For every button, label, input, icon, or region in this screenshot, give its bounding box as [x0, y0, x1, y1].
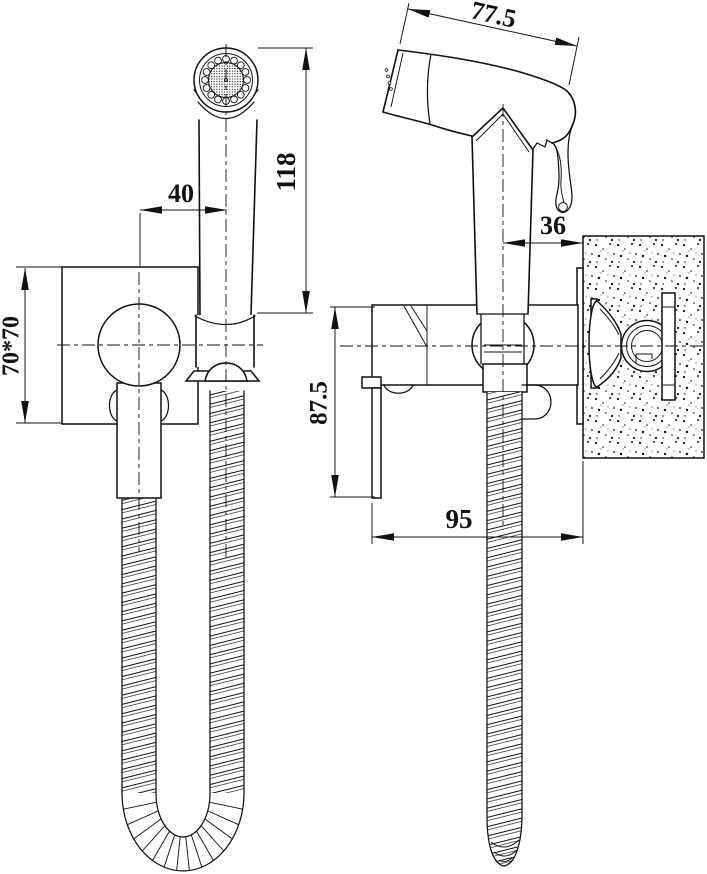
dim-95: 95 — [372, 461, 583, 544]
dim-70x70-label: 70*70 — [0, 316, 25, 376]
sprayer-head-face — [194, 48, 258, 119]
front-view — [62, 48, 259, 871]
sprayer-handle-front — [199, 120, 257, 315]
head-face-edge — [383, 50, 398, 112]
dim-87-5-label: 87.5 — [306, 381, 333, 425]
dim-77-5: 77.5 — [400, 0, 579, 85]
shower-hose-side — [487, 385, 551, 866]
dim-70x70: 70*70 — [0, 267, 62, 423]
control-lever-side — [362, 377, 413, 498]
lever-pivot-hump — [384, 385, 413, 393]
wall-section — [577, 236, 704, 458]
dim-118-label: 118 — [271, 152, 301, 191]
spray-nozzle-tip — [533, 91, 575, 212]
dim-40-label: 40 — [168, 179, 194, 208]
mounting-bracket — [662, 293, 675, 400]
dim-36-label: 36 — [540, 211, 566, 240]
bidet-sprayer-technical-drawing: 77.5 40 118 70*70 — [0, 0, 707, 874]
head-cap-seam — [428, 54, 432, 124]
hose-nut-side — [483, 364, 527, 392]
sprayer-handle-side — [472, 108, 533, 314]
dim-87-5: 87.5 — [306, 307, 375, 497]
dim-118: 118 — [257, 48, 313, 313]
sprayer-holder-front — [186, 315, 259, 381]
hose-right-run — [210, 391, 244, 793]
dim-77-5-label: 77.5 — [468, 0, 519, 34]
dim-95-label: 95 — [446, 504, 473, 534]
side-view — [362, 50, 704, 866]
drawing-sheet: 77.5 40 118 70*70 — [0, 0, 707, 874]
